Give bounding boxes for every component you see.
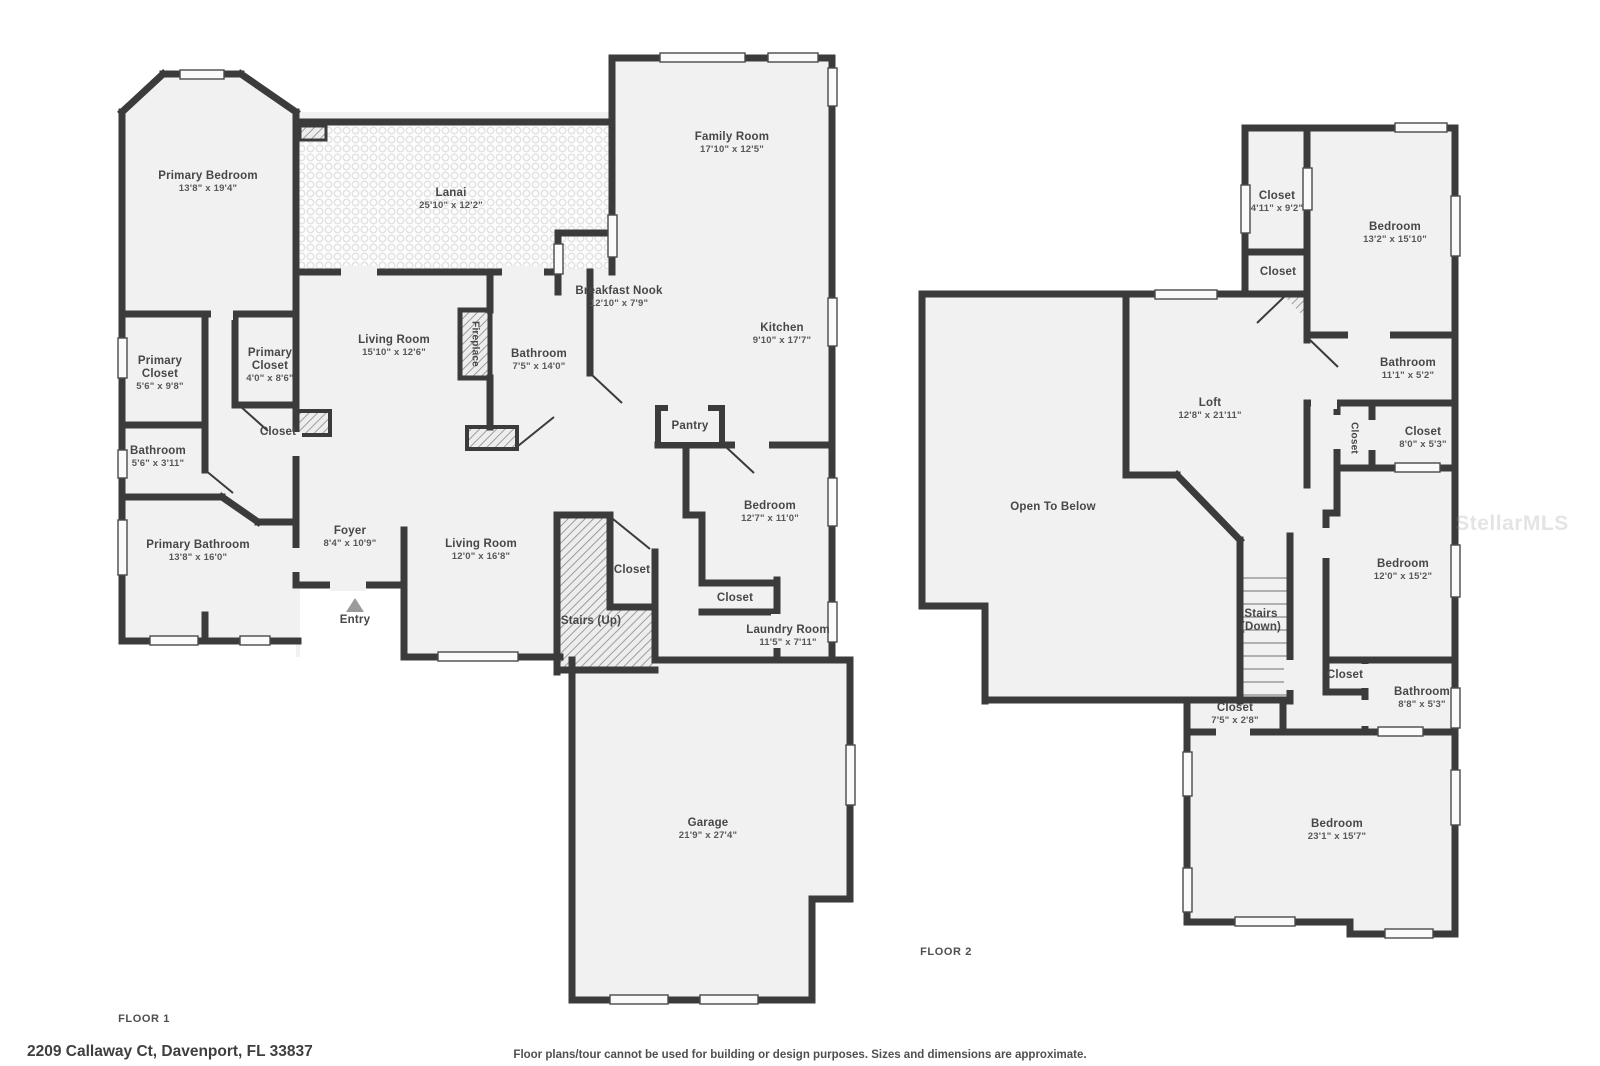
floor1-label: FLOOR 1 [118,1013,170,1026]
closet-hatch [296,411,330,435]
fireplace-hatch [460,310,490,378]
floor-plan-page: Primary Bedroom13'8" x 19'4"Lanai25'10" … [0,0,1600,1066]
property-address: 2209 Callaway Ct, Davenport, FL 33837 [27,1043,313,1061]
floor-plan-drawing [0,0,1600,1066]
stairs-down-treads [1243,569,1287,697]
lanai-corner-hatch [300,126,326,140]
stellar-mls-watermark: StellarMLS [1455,513,1569,535]
floor2-label: FLOOR 2 [920,946,972,959]
floor1-floor-fill [122,58,855,1000]
disclaimer-text: Floor plans/tour cannot be used for buil… [513,1048,1086,1062]
